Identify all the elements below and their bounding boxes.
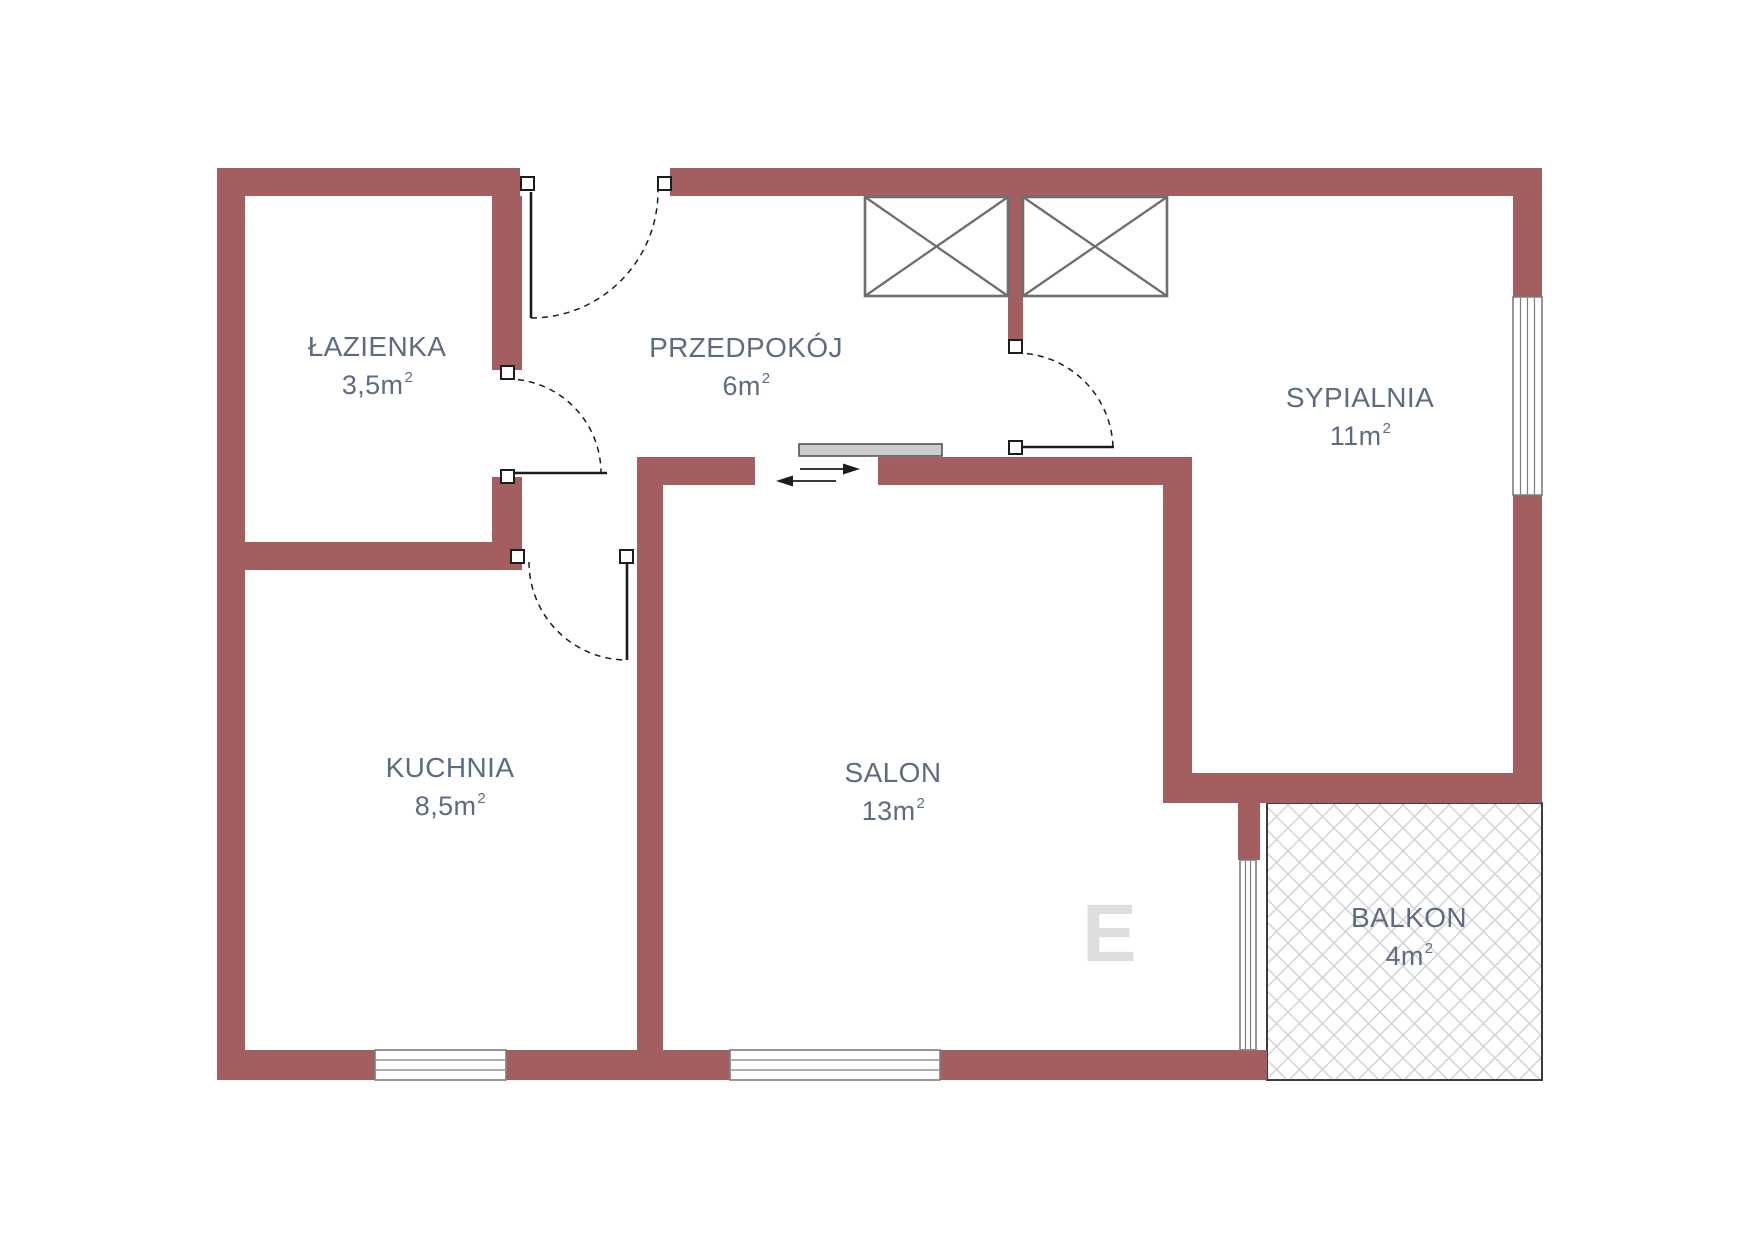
wall-outer-left [217, 168, 245, 1080]
sliding-door-panel [799, 444, 942, 456]
door-entrance [521, 177, 671, 318]
room-area: 11m2 [1286, 414, 1434, 453]
room-label-balkon: BALKON 4m2 [1351, 901, 1467, 973]
door-bathroom [501, 366, 607, 483]
room-label-lazienka: ŁAZIENKA 3,5m2 [308, 330, 447, 402]
arrow-right-icon [843, 464, 860, 475]
wall-outer-bottom-b [506, 1050, 730, 1080]
window-balcony-door [1240, 860, 1256, 1050]
wall-balcony-stub [1238, 803, 1260, 860]
floorplan-canvas: E ŁAZIENKA 3,5m2 PRZEDPOKÓJ 6m2 SYPIALNI… [0, 0, 1754, 1240]
arrow-left-icon [776, 476, 793, 487]
wardrobe-2 [1023, 197, 1167, 296]
watermark-letter: E [1082, 893, 1137, 975]
room-name: PRZEDPOKÓJ [649, 331, 843, 364]
window-livingroom-bottom [730, 1050, 940, 1080]
wall-outer-bottom-c [940, 1050, 1267, 1080]
room-area: 13m2 [845, 789, 942, 828]
wall-outer-top-left [217, 168, 520, 196]
door-kitchen [511, 550, 633, 660]
floorplan-drawing [0, 0, 1754, 1240]
wall-bathroom-bottom [245, 542, 518, 570]
wall-bedroom-left [1163, 485, 1192, 803]
room-label-salon: SALON 13m2 [845, 756, 942, 828]
room-label-sypialnia: SYPIALNIA 11m2 [1286, 381, 1434, 453]
wall-outer-right-upper [1513, 196, 1542, 297]
room-name: BALKON [1351, 901, 1467, 934]
room-name: SALON [845, 756, 942, 789]
wall-outer-right-lower [1513, 495, 1542, 803]
window-kitchen-bottom [375, 1050, 506, 1080]
wall-bedroom-bottom [1192, 773, 1542, 803]
wall-hall-livingroom-b [878, 457, 1192, 485]
room-name: ŁAZIENKA [308, 330, 447, 363]
window-bedroom-right [1513, 297, 1542, 495]
wall-bathroom-right-upper [492, 196, 522, 370]
wall-livingroom-left [637, 457, 663, 1080]
room-area: 6m2 [649, 364, 843, 403]
door-bedroom [1009, 340, 1114, 454]
wall-hall-livingroom-a [663, 457, 755, 485]
room-name: SYPIALNIA [1286, 381, 1434, 414]
room-label-przedpokoj: PRZEDPOKÓJ 6m2 [649, 331, 843, 403]
room-area: 4m2 [1351, 934, 1467, 973]
wall-hall-bedroom-stub [1008, 196, 1023, 353]
room-name: KUCHNIA [386, 751, 515, 784]
wardrobe-1 [865, 197, 1008, 296]
room-area: 3,5m2 [308, 363, 447, 402]
wall-outer-bottom-a [217, 1050, 375, 1080]
room-label-kuchnia: KUCHNIA 8,5m2 [386, 751, 515, 823]
wall-outer-top-right [670, 168, 1542, 196]
room-area: 8,5m2 [386, 784, 515, 823]
